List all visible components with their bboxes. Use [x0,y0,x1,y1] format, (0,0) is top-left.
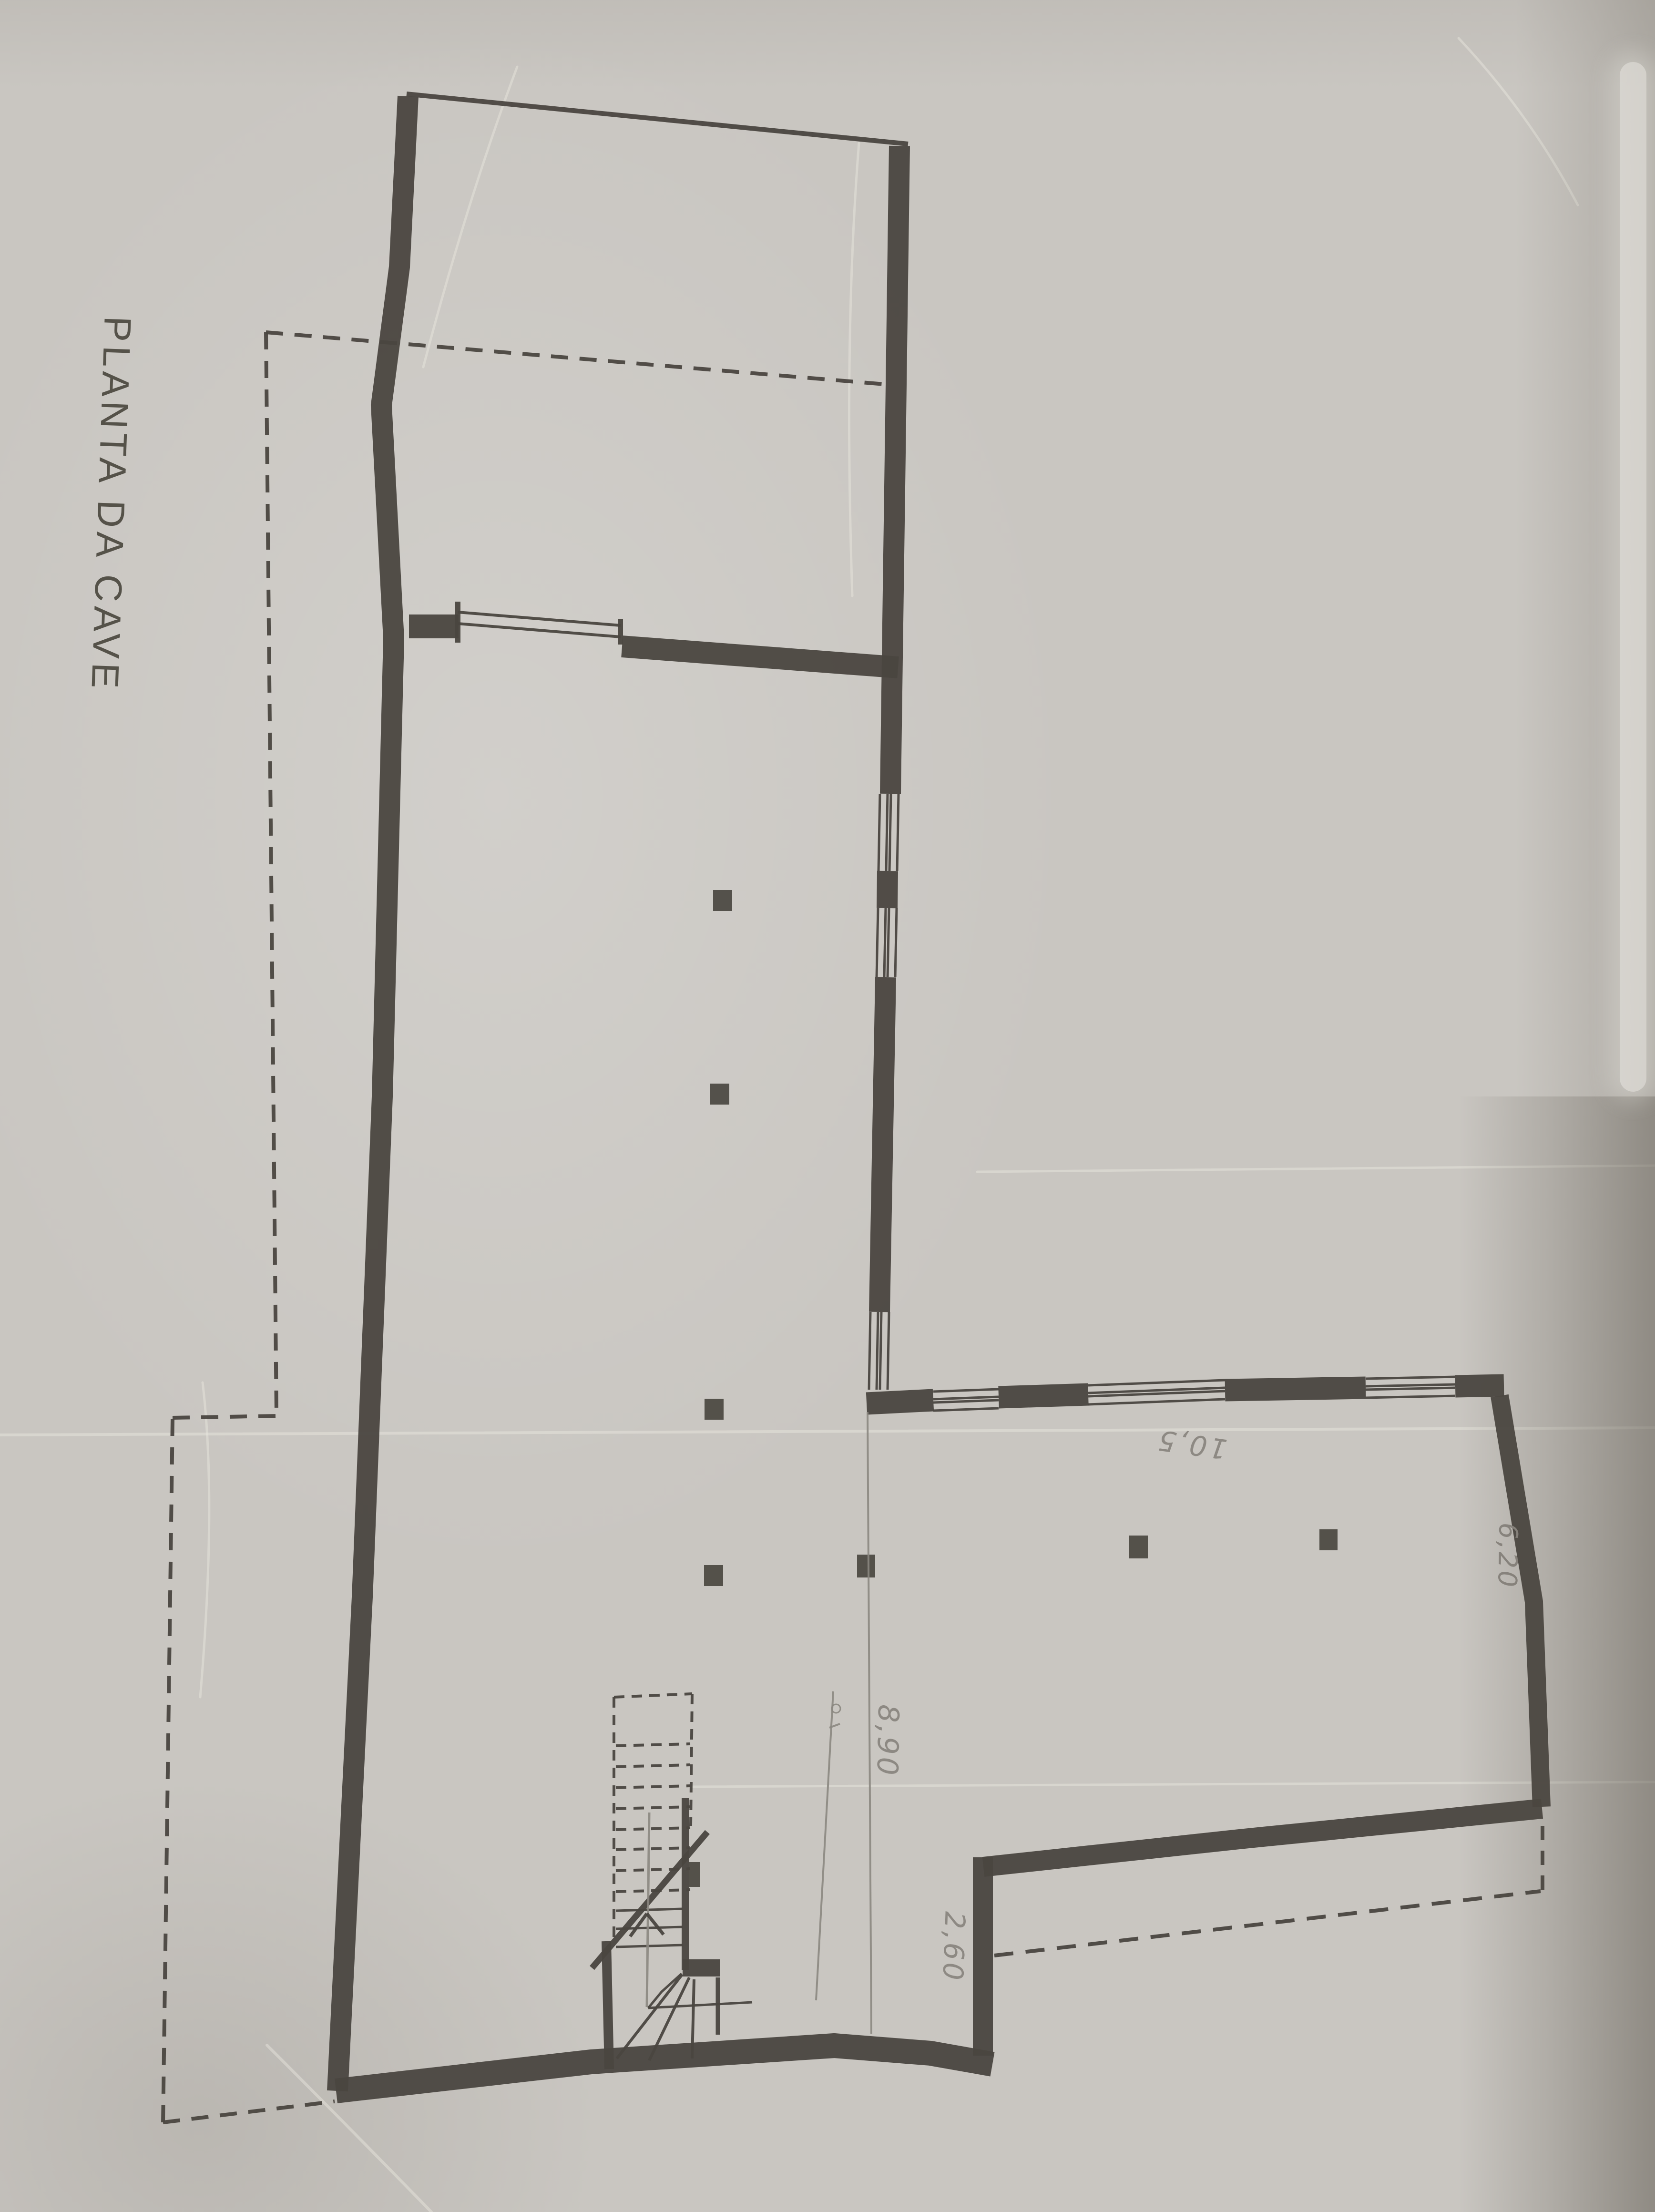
right-wall-lower [879,977,886,1312]
top-boundary-wall-line [407,94,908,144]
crease-line [0,1428,1655,1435]
right-wall-upper [890,146,899,794]
boundary-top-dashed [266,332,884,384]
stair-left-wall [606,1941,609,2069]
column [704,1565,723,1586]
column [710,1084,729,1105]
dimension-2-60: 2,60 [936,1911,971,1983]
walls [336,94,1542,2091]
window-wing-2 [1088,1380,1225,1404]
wing-front-wall-b [999,1394,1088,1397]
window-partition-opening [458,602,621,645]
columns [704,890,1338,1586]
scanned-plan-sheet: PLANTA DA CAVE 8,90 2,60 6,20 10,5 [0,0,1655,2212]
column [705,1399,724,1420]
crease-line [849,143,859,596]
stair-newel-stub [689,1862,700,1887]
crease-line [200,1382,209,1697]
wing-front-wall-c [1225,1388,1366,1390]
boundary-left-dashed [266,332,276,1415]
column [1129,1536,1148,1558]
window-wing-1 [933,1389,999,1411]
winder-riser [692,1979,694,2058]
boundary-jog-dashed [173,1416,277,1418]
stair-walk-line [647,1813,649,2007]
floor-plan-drawing [0,0,1655,2212]
pencil-line [816,1691,833,2000]
wing-bottom-wall [983,1809,1542,1867]
wing-right-wall [1500,1396,1542,1807]
left-exterior-wall [337,96,408,2091]
crease-line [423,67,517,367]
stair-upper-flight-dashed [614,1694,692,1697]
staircase [592,1694,752,2069]
window-wing-3 [1366,1377,1455,1398]
pencil-dimension-lines [816,1412,871,2034]
crease-line [267,2045,431,2212]
boundary-right-dashed [994,1891,1541,1956]
right-wall-pier [887,871,888,908]
crease-line [1459,38,1578,205]
column [857,1555,875,1577]
wing-front-wall-d [1455,1385,1504,1386]
boundary-lower-left-dashed [163,1419,173,2123]
windows [458,602,1455,1411]
boundary-bottom-dashed [163,2101,335,2122]
dimension-6-20: 6,20 [1492,1522,1523,1589]
paper-creases [0,38,1655,2212]
bottom-exterior-wall [336,2046,992,2091]
partition-wall [622,646,898,667]
wing-front-wall-a [867,1400,933,1403]
column [1319,1529,1338,1550]
stair-right-edge-dashed [691,1694,692,1826]
winder-tread [648,2002,752,2008]
window-right-wall-upper [879,794,899,871]
window-right-wall-lower [869,1312,889,1390]
dimension-8-90: 8,90 [870,1704,905,1778]
window-right-wall-mid [877,908,897,977]
crease-line [977,1166,1655,1172]
crease-line [691,1782,1655,1787]
walk-line-arrow [647,1914,664,1935]
column [713,890,732,911]
